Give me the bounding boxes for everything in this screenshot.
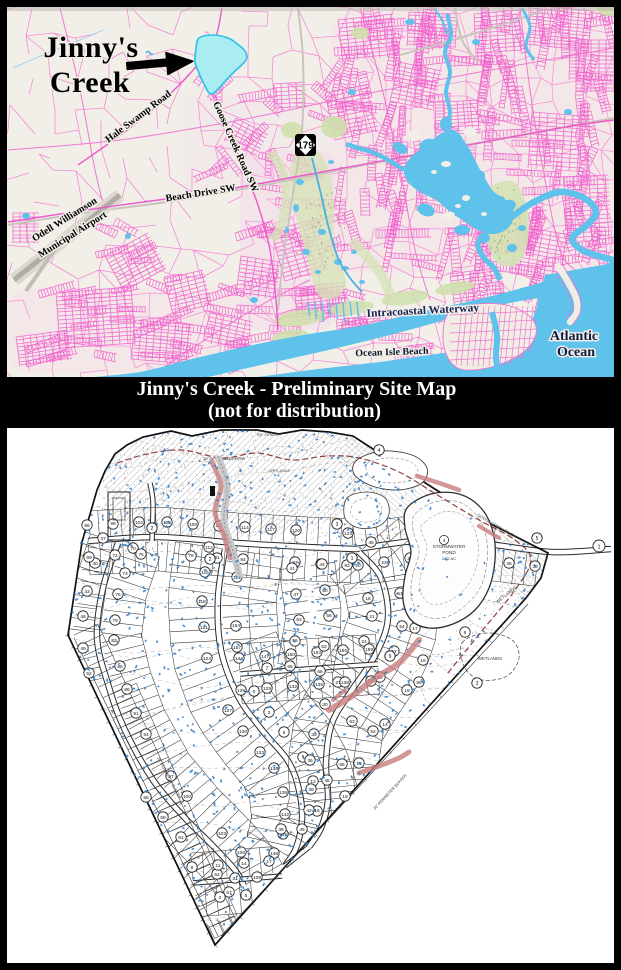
svg-text:70: 70 [130, 546, 136, 552]
svg-text:Ocean: Ocean [557, 345, 595, 360]
svg-text:156: 156 [339, 648, 347, 654]
svg-text:82: 82 [111, 638, 117, 644]
svg-text:65: 65 [287, 664, 293, 670]
svg-text:3: 3 [268, 710, 271, 716]
svg-text:136: 136 [270, 766, 278, 772]
svg-text:19: 19 [342, 794, 348, 800]
svg-text:45: 45 [324, 778, 330, 784]
svg-text:44: 44 [319, 562, 325, 568]
svg-text:14: 14 [241, 861, 247, 867]
svg-text:94: 94 [143, 732, 149, 738]
svg-text:35: 35 [506, 561, 512, 567]
svg-text:103: 103 [218, 831, 226, 837]
svg-text:2.32 AC: 2.32 AC [442, 556, 456, 561]
svg-text:154: 154 [232, 623, 240, 629]
svg-text:135: 135 [315, 682, 323, 688]
svg-text:47: 47 [293, 592, 299, 598]
svg-text:91: 91 [133, 711, 139, 717]
svg-text:16: 16 [420, 658, 426, 664]
svg-text:109: 109 [253, 875, 261, 881]
svg-text:1: 1 [597, 545, 600, 551]
svg-text:18: 18 [365, 596, 371, 602]
svg-text:150: 150 [287, 652, 295, 658]
svg-text:96: 96 [84, 523, 90, 529]
svg-text:38: 38 [278, 827, 284, 833]
svg-text:23: 23 [381, 560, 387, 566]
svg-text:POND: POND [442, 550, 456, 555]
svg-text:124: 124 [203, 656, 211, 662]
svg-text:4: 4 [443, 538, 446, 543]
svg-text:5: 5 [536, 536, 539, 542]
svg-text:142: 142 [281, 812, 289, 818]
svg-text:6: 6 [464, 630, 467, 636]
svg-text:54: 54 [399, 624, 405, 630]
svg-text:48: 48 [368, 540, 374, 546]
svg-text:66: 66 [339, 762, 345, 768]
svg-text:53: 53 [296, 617, 302, 623]
svg-text:5: 5 [245, 893, 248, 899]
svg-text:69: 69 [86, 555, 92, 561]
svg-text:21: 21 [369, 614, 375, 620]
svg-text:88: 88 [124, 687, 130, 693]
svg-text:18: 18 [404, 688, 410, 694]
svg-text:52: 52 [370, 729, 376, 735]
svg-text:127: 127 [224, 708, 232, 714]
svg-text:179: 179 [297, 141, 314, 152]
svg-text:106: 106 [237, 850, 245, 856]
svg-text:118: 118 [198, 599, 206, 605]
svg-text:85: 85 [117, 664, 123, 670]
svg-text:102: 102 [135, 520, 143, 526]
svg-text:153: 153 [313, 650, 321, 656]
svg-text:WETLANDS: WETLANDS [478, 656, 502, 661]
svg-text:4: 4 [378, 448, 381, 454]
svg-text:3: 3 [476, 681, 479, 687]
svg-text:64: 64 [214, 872, 220, 878]
svg-text:56: 56 [326, 613, 332, 619]
svg-text:79: 79 [112, 618, 118, 624]
svg-text:55: 55 [143, 795, 149, 801]
svg-text:7: 7 [266, 666, 269, 672]
svg-text:76: 76 [115, 592, 121, 598]
svg-text:30: 30 [322, 702, 328, 708]
svg-text:138: 138 [341, 680, 349, 686]
svg-text:6: 6 [283, 730, 286, 736]
svg-text:14: 14 [382, 722, 388, 728]
svg-text:159: 159 [365, 647, 373, 653]
svg-text:73: 73 [122, 571, 128, 577]
svg-text:Jinny's: Jinny's [43, 31, 138, 64]
svg-text:157: 157 [233, 645, 241, 651]
svg-text:0: 0 [253, 689, 256, 695]
svg-text:84: 84 [240, 557, 246, 563]
svg-text:100: 100 [183, 794, 191, 800]
svg-text:39: 39 [308, 787, 314, 793]
svg-text:30' RIPARIAN BUFFER: 30' RIPARIAN BUFFER [203, 456, 245, 461]
svg-text:130: 130 [239, 729, 247, 735]
svg-text:41: 41 [289, 566, 295, 572]
svg-text:11: 11 [216, 863, 221, 869]
svg-text:61: 61 [178, 835, 184, 841]
svg-text:93: 93 [344, 563, 350, 569]
svg-text:37: 37 [100, 536, 106, 542]
svg-text:42: 42 [306, 808, 312, 814]
svg-text:40: 40 [92, 561, 98, 567]
svg-text:46: 46 [80, 614, 86, 620]
svg-text:EX. FENCE: EX. FENCE [257, 432, 278, 437]
svg-text:Atlantic: Atlantic [550, 329, 598, 344]
svg-text:99: 99 [110, 521, 116, 527]
svg-text:129: 129 [263, 686, 271, 692]
svg-text:STORMWATER: STORMWATER [433, 544, 466, 549]
svg-text:43: 43 [84, 589, 90, 595]
svg-text:126: 126 [237, 688, 245, 694]
svg-text:3: 3 [336, 522, 339, 528]
svg-text:2: 2 [209, 557, 212, 563]
svg-text:139: 139 [279, 790, 287, 796]
svg-text:45: 45 [299, 827, 305, 833]
svg-text:WETLANDS: WETLANDS [269, 469, 291, 473]
svg-text:105: 105 [163, 520, 171, 526]
svg-text:2: 2 [219, 895, 222, 901]
svg-text:68: 68 [317, 669, 323, 675]
svg-text:63: 63 [349, 719, 355, 725]
svg-text:114: 114 [241, 525, 249, 531]
svg-text:9: 9 [389, 654, 392, 660]
svg-text:49: 49 [80, 646, 86, 652]
svg-text:1: 1 [351, 556, 354, 562]
svg-text:36: 36 [307, 758, 313, 764]
svg-text:8: 8 [191, 865, 194, 871]
svg-text:33: 33 [311, 732, 317, 738]
svg-text:132: 132 [289, 684, 297, 690]
svg-text:24: 24 [361, 639, 367, 645]
svg-text:58: 58 [160, 815, 166, 821]
svg-text:Creek: Creek [50, 66, 130, 99]
svg-text:62: 62 [321, 644, 327, 650]
svg-text:72: 72 [112, 553, 118, 559]
svg-text:75: 75 [138, 552, 144, 558]
svg-text:2: 2 [151, 526, 154, 532]
svg-text:17: 17 [412, 626, 418, 632]
svg-text:52: 52 [86, 671, 92, 677]
svg-text:108: 108 [189, 522, 197, 528]
